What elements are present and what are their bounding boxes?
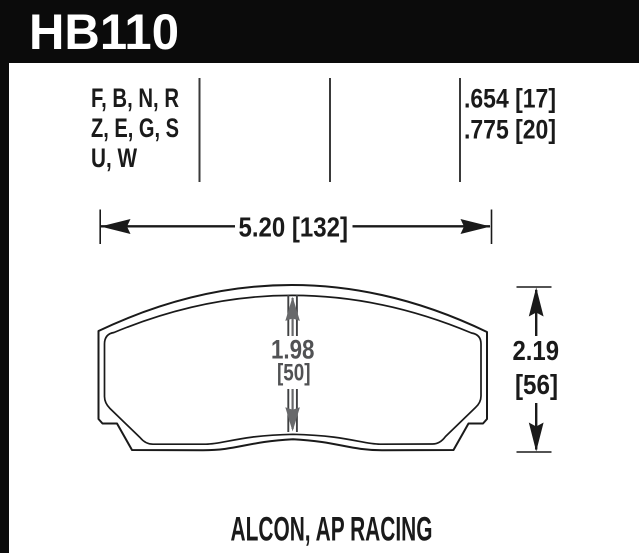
svg-text:2.19: 2.19 xyxy=(513,335,560,366)
svg-text:.775 [20]: .775 [20] xyxy=(464,115,556,145)
svg-text:HB110: HB110 xyxy=(29,4,179,60)
svg-text:F, B, N, R: F, B, N, R xyxy=(91,83,179,113)
svg-text:ALCON, AP RACING: ALCON, AP RACING xyxy=(231,511,433,549)
svg-text:5.20 [132]: 5.20 [132] xyxy=(239,212,349,243)
svg-text:.654 [17]: .654 [17] xyxy=(464,84,556,114)
svg-text:U, W: U, W xyxy=(91,143,137,173)
svg-text:[56]: [56] xyxy=(515,369,558,400)
svg-text:[50]: [50] xyxy=(277,360,311,387)
svg-text:Z, E, G, S: Z, E, G, S xyxy=(91,113,179,143)
